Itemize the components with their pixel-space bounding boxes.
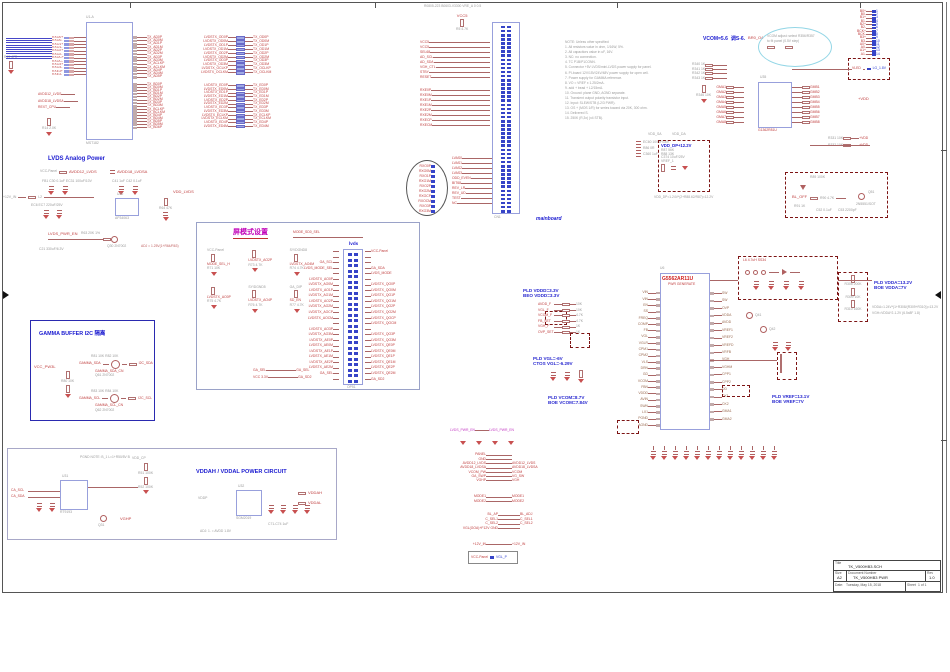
pin <box>348 358 352 361</box>
level-shifter: R83 10K R84 10K GAMMA_SCL I2C_SCL GAMMA_… <box>79 390 153 413</box>
pin <box>507 120 511 123</box>
ic-part: MST182 <box>86 142 99 146</box>
pin <box>348 330 352 333</box>
mainboard-label: mainboard <box>536 216 562 222</box>
gnd-symbol <box>62 191 68 195</box>
pull-group: LVDSTX_AO0P R75 4.7K <box>207 286 242 313</box>
section-title: VDDAH / VDDAL POWER CIRCUIT <box>196 469 287 475</box>
ic-ref: U6 <box>660 267 664 271</box>
bus-line <box>6 53 52 54</box>
pin <box>501 83 505 86</box>
pin <box>354 303 358 306</box>
pin-row: VREFD <box>710 342 754 349</box>
connector-pin-row <box>493 209 519 213</box>
resistor <box>562 326 570 329</box>
capacitor <box>269 505 274 509</box>
gnd-symbol <box>65 394 71 398</box>
boost-dashed-box: L6 4.7uH SS34 <box>738 256 838 300</box>
capacitor <box>684 451 689 455</box>
pin <box>501 206 505 209</box>
pin <box>354 314 358 317</box>
pin <box>501 190 505 193</box>
pin <box>507 87 511 90</box>
pullup-stack: R80 10K <box>61 371 74 398</box>
pin <box>507 128 511 131</box>
connector-body <box>492 22 520 214</box>
pin <box>490 556 494 559</box>
gnd-symbol <box>694 456 700 460</box>
connector-label: lvds <box>349 241 358 246</box>
gnd-symbol <box>476 441 482 445</box>
pin <box>656 386 660 389</box>
net-row: REXT_CPU <box>38 106 78 110</box>
pin <box>501 46 505 49</box>
gnd-symbol <box>492 441 498 445</box>
pin <box>507 140 511 143</box>
resistor <box>802 91 810 94</box>
capacitor <box>110 170 115 174</box>
pin <box>507 116 511 119</box>
resistor <box>128 397 136 400</box>
pin <box>348 341 352 344</box>
capacitor <box>636 141 641 145</box>
pin <box>431 165 435 168</box>
pin <box>348 253 352 256</box>
net-row: TX_BD6P <box>133 126 165 129</box>
mosfet <box>111 360 120 369</box>
pin <box>348 286 352 289</box>
input-caps <box>43 210 62 219</box>
resistor <box>562 309 570 312</box>
gnd-symbol <box>46 132 52 136</box>
pin <box>656 342 660 345</box>
pin <box>656 336 660 339</box>
net-row: R331 10K+VDD <box>828 137 868 141</box>
mode-connector <box>343 249 363 385</box>
pin <box>501 104 505 107</box>
pin <box>501 149 505 152</box>
capacitor <box>551 372 556 376</box>
pin <box>348 297 352 300</box>
pin <box>431 175 435 178</box>
pin <box>507 42 511 45</box>
net-row: RXECM <box>420 123 490 128</box>
gnd-symbol <box>768 286 774 290</box>
net-row: +12V_IN+12V_IN <box>450 543 525 547</box>
pin <box>507 108 511 111</box>
diode <box>782 269 787 275</box>
cap-to-gnd <box>771 446 777 460</box>
vcom-section: VCOM=5.6 调S-6. BR0_O4 VCOM adjust: selec… <box>640 5 900 220</box>
zone-tick <box>130 2 131 8</box>
bus-line <box>6 45 52 46</box>
gnd-symbol <box>292 510 298 514</box>
pin <box>507 190 511 193</box>
pin <box>507 95 511 98</box>
resistor <box>726 96 734 99</box>
zone-tick <box>617 2 618 8</box>
cap-to-gnd <box>661 446 667 460</box>
ic-part: SGM2019 <box>236 517 251 521</box>
mosfet <box>111 236 118 243</box>
circled-pin-group: RXO0PRXO0MRXO1PRXO1MRXO2PRXO2MRXOCPRXOCM… <box>406 160 448 216</box>
ic-part: G1362R81U <box>758 129 777 133</box>
rn-group-1: LVDSTX_OD0P TX_OD0P LVDSTX_OD0M TX_OD0M … <box>200 36 271 75</box>
top-note: R0805-223 B0603-V3300 VRE_A 0 0.5 <box>424 4 481 9</box>
net-row: AVDD18_LVDSA <box>38 100 78 104</box>
pin <box>501 177 505 180</box>
bottom-caps-row <box>650 446 777 460</box>
resistor <box>66 385 70 393</box>
pin <box>431 195 435 198</box>
gnd-symbol <box>771 456 777 460</box>
mode-conn-left-labels: GA_SCLLVDS_MODE_SELLVDSTX_AO0PLVDSTX_AO0… <box>253 249 339 382</box>
cap-to-gnd <box>683 446 689 460</box>
bl-dashed-box: R89 100K BL_OFF R90 4.7K Q51 2N5551/SOT … <box>785 172 888 218</box>
net-row: LVDS_PWR_ENLVDS_PWR_EN <box>450 429 514 433</box>
gnd-symbol <box>211 272 217 276</box>
pin <box>656 361 660 364</box>
transistor <box>760 326 767 333</box>
pwr-generate-region: U6 G5562AR11U PWR GENERATE VINVINENSSFRE… <box>520 250 942 472</box>
gnd-symbol <box>661 456 667 460</box>
gnd-symbol <box>650 456 656 460</box>
pin <box>507 198 511 201</box>
gamma-buffer-block: GAMMA BUFFER I2C 隔离 VCC_PW3L R80 10K R81… <box>30 320 155 421</box>
bus-line <box>6 40 52 41</box>
pin <box>354 264 358 267</box>
pin <box>656 418 660 421</box>
pin <box>507 30 511 33</box>
pin <box>501 144 505 147</box>
dashed-box-small3 <box>617 420 639 434</box>
pin <box>501 54 505 57</box>
net-row: RXO3M <box>409 209 445 214</box>
right-caps <box>772 342 791 351</box>
gnd-symbol <box>749 456 755 460</box>
pin <box>501 132 505 135</box>
annotation-vcom: PLD VCOM=8.7VBOE VCOM=7.84V <box>548 395 588 406</box>
avdd18-circuit: AVDD18_LVDSA <box>110 170 147 174</box>
vdd-dp-box: VDD_DP+12.2V R87 56KR88 13KC374 10uF/25V… <box>658 140 710 192</box>
capacitor <box>671 166 676 170</box>
bus-line <box>6 38 52 39</box>
pin <box>501 161 505 164</box>
pin <box>354 336 358 339</box>
resistor <box>661 164 665 172</box>
resistor <box>144 463 148 471</box>
date-row: Date: Tuesday, May 15, 2018 Sheet 1 of 1 <box>834 582 940 591</box>
resistor <box>298 502 306 505</box>
pin <box>507 67 511 70</box>
capacitor <box>119 186 124 190</box>
offpage-connector-block: LVDS_PWR_ENLVDS_PWR_EN PANELGNDAVDD12_LV… <box>450 425 580 575</box>
annotation-vgl: PLD VGL=-6VCTOS VGL=-6.29V <box>533 356 573 367</box>
zone-tick-right <box>941 150 947 151</box>
pin <box>501 136 505 139</box>
pin <box>501 63 505 66</box>
cap-to-gnd <box>705 446 711 460</box>
pin <box>507 104 511 107</box>
pin <box>507 83 511 86</box>
ic-part: AP34063 <box>115 217 129 221</box>
left-misc-rows: AVDD_F10KVGL_F10KVCOM_F4.7KFB_SET4.7KVGH… <box>538 302 583 336</box>
zone-arrow-left <box>3 291 9 299</box>
pin <box>501 128 505 131</box>
pin <box>348 270 352 273</box>
pin <box>507 71 511 74</box>
gnd-row <box>460 441 514 445</box>
pull-group: VCC-Panel MODE_SEL_H R71 10K <box>207 249 242 276</box>
pin <box>431 210 435 213</box>
resistor <box>144 477 148 485</box>
pin <box>348 374 352 377</box>
gnd-symbol <box>578 379 584 383</box>
pin <box>431 200 435 203</box>
mode-setting-block: 屏模式设置 MODE_SD0_SEL VCC-Panel MODE_SEL_H … <box>196 222 420 390</box>
pin <box>656 349 660 352</box>
net-row: VGL(GOA)+F12V GND <box>450 527 533 532</box>
pin <box>501 116 505 119</box>
gnd-symbol <box>783 286 789 290</box>
pin <box>507 50 511 53</box>
pin <box>354 297 358 300</box>
series-resistor-array: RXO0+ RXO0- RXO1+ RXO1- RXO2+ <box>52 36 86 77</box>
cap-to-gnd <box>694 446 700 460</box>
rext-resistor: R14 2.0K <box>42 118 56 136</box>
gnd-symbol <box>683 456 689 460</box>
bus-line <box>6 42 52 43</box>
transistor <box>100 515 107 522</box>
gnd-symbol <box>56 215 62 219</box>
pin <box>656 355 660 358</box>
sheet-title: TK_V500HB3.SCH <box>848 564 882 569</box>
capacitor <box>706 451 711 455</box>
gnd-symbol <box>772 347 778 351</box>
pin <box>348 380 352 383</box>
pin <box>507 202 511 205</box>
capacitor <box>769 281 774 285</box>
capacitor <box>761 451 766 455</box>
annotation-vref: PLD VREF=13.1VBOE VREF=7V <box>772 394 809 405</box>
gnd-symbol <box>280 510 286 514</box>
resistor <box>785 46 793 49</box>
resistor <box>562 303 570 306</box>
pin <box>656 298 660 301</box>
pin <box>507 136 511 139</box>
zener-diode <box>800 185 806 190</box>
resistor <box>705 64 713 67</box>
pin <box>501 169 505 172</box>
rev-cell: Rev 1.0 <box>926 571 940 581</box>
vddah-block: PGND NOTE: B_1 L=1+R50/5V B CA_SCL CA_SD… <box>7 448 337 540</box>
notes-block: NOTE: Unless other specified:1. All resi… <box>565 40 651 122</box>
resistor <box>726 106 734 109</box>
net-row: GA_SELGA_SEL <box>253 369 311 373</box>
pin <box>507 63 511 66</box>
gnd-symbol <box>738 456 744 460</box>
pin <box>507 185 511 188</box>
transistor <box>746 312 753 319</box>
vgl-box: VCC-Panel VGL_P <box>468 551 518 564</box>
vcom-ellipse: VCOM adjust: select R356/R357 to fit pan… <box>758 27 832 67</box>
resistor <box>460 19 464 27</box>
resistor <box>705 68 713 71</box>
resistor-network <box>236 125 245 128</box>
pin <box>507 91 511 94</box>
net-row: RESET <box>420 75 490 80</box>
pin <box>501 71 505 74</box>
inductor <box>745 270 750 275</box>
pin <box>348 347 352 350</box>
resistor <box>802 121 810 124</box>
net-row: AVDD12_LVDS <box>38 93 78 97</box>
pin <box>507 75 511 78</box>
gnd-symbol <box>211 305 217 309</box>
bus-line <box>6 47 52 48</box>
pin-row: CK2 <box>710 401 754 408</box>
gnd-symbol <box>682 166 688 170</box>
pin <box>507 161 511 164</box>
pin <box>656 399 660 402</box>
gnd-symbol <box>705 456 711 460</box>
pin <box>501 185 505 188</box>
capacitor <box>662 451 667 455</box>
gnd-symbol <box>753 286 759 290</box>
capacitor <box>63 186 68 190</box>
zone-tick <box>375 2 376 8</box>
resistor <box>211 254 215 262</box>
resistor <box>726 91 734 94</box>
ic-ref: U30 <box>117 193 123 197</box>
pin <box>348 336 352 339</box>
ic-body <box>86 22 133 140</box>
pin <box>501 157 505 160</box>
pin <box>501 165 505 168</box>
pin <box>656 330 660 333</box>
pin <box>501 95 505 98</box>
gnd-symbol <box>550 377 556 381</box>
dcdc-circuit: +12V_IN L2 EC6 EC7 220uF/25V U30 AP34063… <box>3 196 193 256</box>
gnd-symbol <box>304 510 310 514</box>
pin <box>354 363 358 366</box>
pin <box>431 205 435 208</box>
pin <box>354 325 358 328</box>
pin <box>354 352 358 355</box>
pin <box>354 341 358 344</box>
section-title: 屏模式设置 <box>233 227 268 239</box>
resistor <box>726 101 734 104</box>
pin <box>354 286 358 289</box>
pin <box>354 374 358 377</box>
pin-row: VRFB <box>710 349 754 356</box>
connector-pin-row <box>344 379 362 385</box>
size-cell: Size A2 <box>834 571 847 581</box>
ic-ref: U31 <box>62 475 68 479</box>
gnd-symbol <box>785 347 791 351</box>
mosfet <box>110 394 119 403</box>
divider-res: R309 10K <box>845 288 860 300</box>
resistor <box>726 121 734 124</box>
pin <box>501 112 505 115</box>
bus-line <box>6 56 52 57</box>
dashed-box-vref <box>777 352 797 380</box>
capacitor <box>750 451 755 455</box>
cap-to-gnd <box>650 446 656 460</box>
resistor <box>705 72 713 75</box>
capacitor <box>673 451 678 455</box>
ic-left-nets: AVDD12_LVDSAVDD18_LVDSAREXT_CPU <box>38 93 78 110</box>
resistor-network <box>236 71 245 74</box>
pin <box>507 124 511 127</box>
resistor <box>562 331 570 334</box>
pin <box>354 330 358 333</box>
tr-connector: B0+1B0-2B1+3B1-4B2+5B2-6BCK+7BCK-8B3+9B3… <box>852 10 880 56</box>
capacitor <box>281 505 286 509</box>
pin-row: VREF2 <box>710 334 754 341</box>
pin <box>501 153 505 156</box>
pin <box>507 149 511 152</box>
pin <box>501 120 505 123</box>
gnd-symbol <box>508 441 514 445</box>
capacitor <box>754 281 759 285</box>
gnd-symbol <box>132 191 138 195</box>
resistor <box>802 96 810 99</box>
pin-row: VGHM <box>710 364 754 371</box>
net-row: LVDSTX_ED4M TX_ED4M <box>200 125 271 129</box>
page-border-right2 <box>946 2 947 593</box>
ic-ref: U1-A <box>86 16 94 20</box>
pin <box>656 311 660 314</box>
pin <box>507 144 511 147</box>
resistor <box>705 77 713 80</box>
pin-row: OVP <box>710 305 754 312</box>
left-caps <box>550 370 584 383</box>
ic-ref: U35 <box>760 76 766 80</box>
pin <box>348 264 352 267</box>
gnd-symbol <box>564 377 570 381</box>
vddah-right-circuit: VDDP U32 SGM2019 C71-C74 1uF VDDAH VDDAL… <box>198 479 334 537</box>
resistor <box>702 85 706 93</box>
pin <box>348 352 352 355</box>
pin <box>501 181 505 184</box>
pin <box>507 181 511 184</box>
pin <box>656 304 660 307</box>
cap-to-gnd <box>672 446 678 460</box>
pin <box>656 292 660 295</box>
conn-left-cluster1: VCC5VCC5SEL68AD_SCLAD_SDAVGH_CTLSTBYRESE… <box>420 40 490 80</box>
capacitor <box>565 372 570 376</box>
ic-right-group1: TX_AD0P TX_AD0M TX_AD1P TX_AD1M TX_AD2P … <box>133 36 165 79</box>
conn-lower-cluster: LVAS0LVAS1LVAS2LVAS3ODD_EVENBIT68REV_LRR… <box>452 156 492 206</box>
level-shifter: R81 10K R82 10K GAMMA_SDA I2C_SDA GAMMA_… <box>79 355 153 378</box>
pin <box>656 393 660 396</box>
net-row: A1-14 <box>852 53 880 56</box>
ic-sub: PWR GENERATE <box>668 283 695 287</box>
gnd-symbol <box>672 456 678 460</box>
inductor <box>28 196 36 199</box>
pin <box>501 210 505 213</box>
gnd-symbol <box>727 456 733 460</box>
pin <box>348 363 352 366</box>
ic-right-group2: TX_BD0P TX_BD0M TX_BD1P TX_BD1M TX_BD2P … <box>133 83 165 129</box>
pin <box>507 210 511 213</box>
pin-row: GMA2 <box>710 416 754 423</box>
pin <box>507 165 511 168</box>
pin-row: VREF1 <box>710 327 754 334</box>
gnd-symbol <box>716 456 722 460</box>
bus-line <box>6 51 52 52</box>
